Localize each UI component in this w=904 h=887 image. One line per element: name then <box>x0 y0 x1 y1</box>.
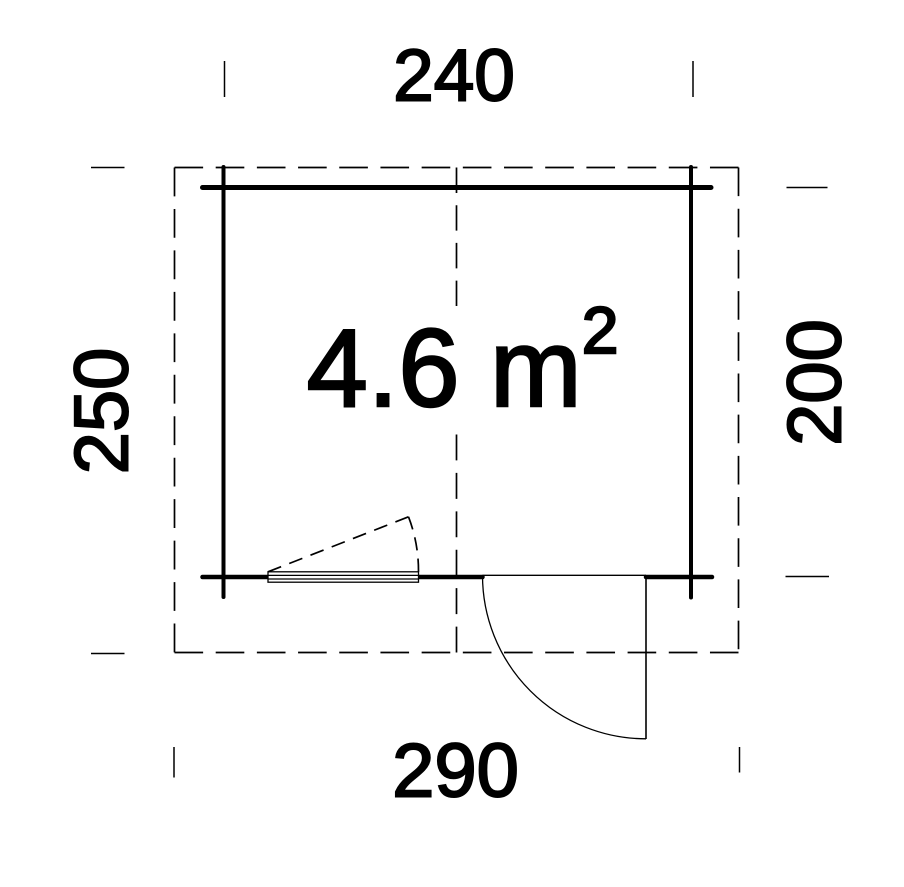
svg-text:200: 200 <box>773 319 858 446</box>
svg-text:4.6 m2: 4.6 m2 <box>307 293 619 430</box>
svg-text:240: 240 <box>393 36 515 117</box>
svg-text:290: 290 <box>392 729 519 814</box>
svg-text:250: 250 <box>60 348 145 475</box>
